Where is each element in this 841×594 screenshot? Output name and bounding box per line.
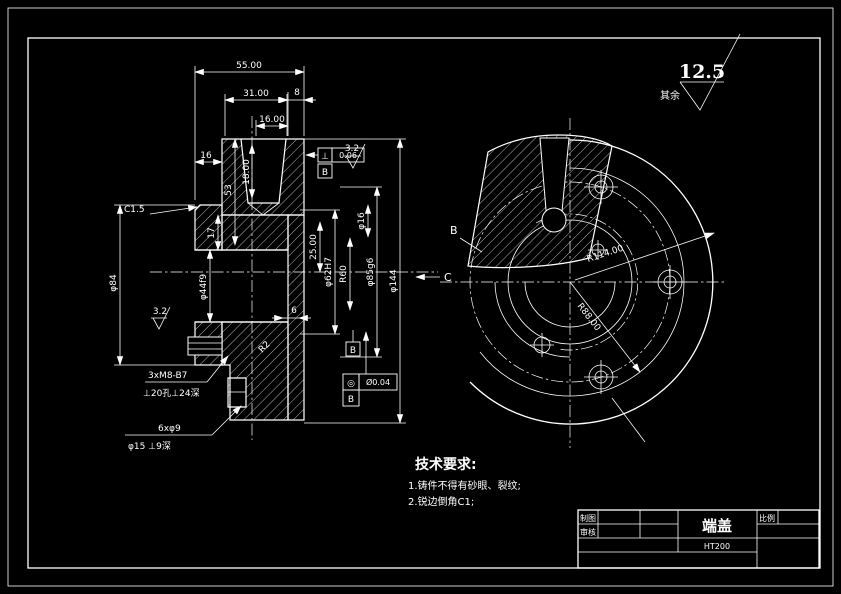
counterbore-callout-line2: φ15 ⊥9深: [128, 441, 171, 452]
small-hole: [530, 333, 554, 357]
large-hole: [653, 265, 687, 299]
dim-8: 8: [294, 88, 300, 98]
counterbore-callout-line1: 6xφ9: [158, 424, 181, 434]
large-hole: [584, 360, 618, 394]
tech-req-title: 技术要求:: [415, 456, 477, 473]
fcf-symbol: ◎: [347, 379, 355, 389]
tech-req-item-2: 2.锐边倒角C1;: [408, 495, 474, 508]
chamfer-leader: [150, 207, 197, 214]
chamfer-callout: C1.5: [124, 205, 145, 215]
technical-requirements: 技术要求: 1.铸件不得有砂眼、裂纹; 2.锐边倒角C1;: [408, 456, 521, 508]
spigot-arc: [495, 282, 570, 357]
title-block-border: [578, 510, 819, 568]
dim-16-00: 16.00: [259, 115, 285, 125]
label-checked: 审核: [580, 527, 596, 537]
counterbore-callout: 6xφ9 φ15 ⊥9深: [125, 406, 241, 452]
others-label: 其余: [660, 89, 680, 102]
flange-section: [288, 215, 304, 420]
thread-callout-line2: ⊥20孔⊥24深: [143, 388, 200, 399]
upper-web-section: [222, 215, 288, 250]
tech-req-item-1: 1.铸件不得有砂眼、裂纹;: [408, 479, 521, 492]
dim-25: 25.00: [309, 234, 319, 260]
dim-r60: R60: [339, 265, 349, 283]
tapped-hole-circle: [542, 208, 566, 232]
thread-callout-line1: 3xM8-B7: [148, 371, 187, 381]
lower-web-section: [222, 322, 288, 420]
broken-out-section: [468, 135, 612, 268]
fcf-datum: B: [348, 395, 354, 405]
dim-d84: φ84: [109, 274, 119, 292]
dim-31: 31.00: [243, 89, 269, 99]
dim-left-16: 16: [200, 151, 212, 161]
label-scale: 比例: [759, 513, 775, 523]
hub-section: [222, 139, 304, 215]
title-block: 制图 审核 比例 端盖 HT200: [578, 510, 819, 568]
datum-b-flag: B: [346, 330, 360, 356]
dim-6: 6: [291, 306, 297, 316]
view-label-b: B: [450, 224, 458, 237]
thread-section: [188, 337, 222, 355]
fcf-value: Ø0.04: [366, 377, 390, 387]
dim-d85: φ85g6: [366, 257, 376, 286]
datum-label: B: [350, 346, 356, 356]
dim-18: 18.00: [242, 159, 252, 185]
roughness-mark-left: 3.2: [151, 307, 170, 329]
material: HT200: [704, 542, 730, 551]
general-roughness-note: 其余 12.5: [660, 34, 740, 110]
break-line: [612, 398, 645, 442]
label-drawn: 制图: [580, 513, 596, 523]
roughness-value: 3.2: [153, 307, 167, 317]
dim-d144: φ144: [389, 269, 399, 292]
drawing-sheet: 55.00 31.00 16.00 8 16 53 18.00 17 C1.5 …: [0, 0, 841, 594]
dim-53: 53: [224, 184, 234, 195]
roughness-value: 12.5: [679, 61, 725, 83]
r88-leader: [570, 282, 640, 372]
dim-d44: φ44f9: [199, 274, 209, 301]
dim-d62: φ62H7: [324, 257, 334, 287]
fcf-datum: B: [322, 168, 328, 178]
fcf-value: 0.06: [339, 151, 357, 160]
fcf-concentricity: ◎ Ø0.04 B: [343, 332, 397, 406]
part-name: 端盖: [702, 517, 732, 535]
dim-17: 17: [207, 227, 217, 238]
dim-55: 55.00: [236, 61, 262, 71]
end-view: R114.00 R88.00 B: [440, 118, 724, 448]
section-view: 55.00 31.00 16.00 8 16 53 18.00 17 C1.5 …: [109, 61, 452, 452]
fcf-symbol: ⊥: [321, 152, 329, 162]
cad-drawing-canvas: 55.00 31.00 16.00 8 16 53 18.00 17 C1.5 …: [0, 0, 841, 594]
dim-d16: φ16: [357, 212, 367, 230]
